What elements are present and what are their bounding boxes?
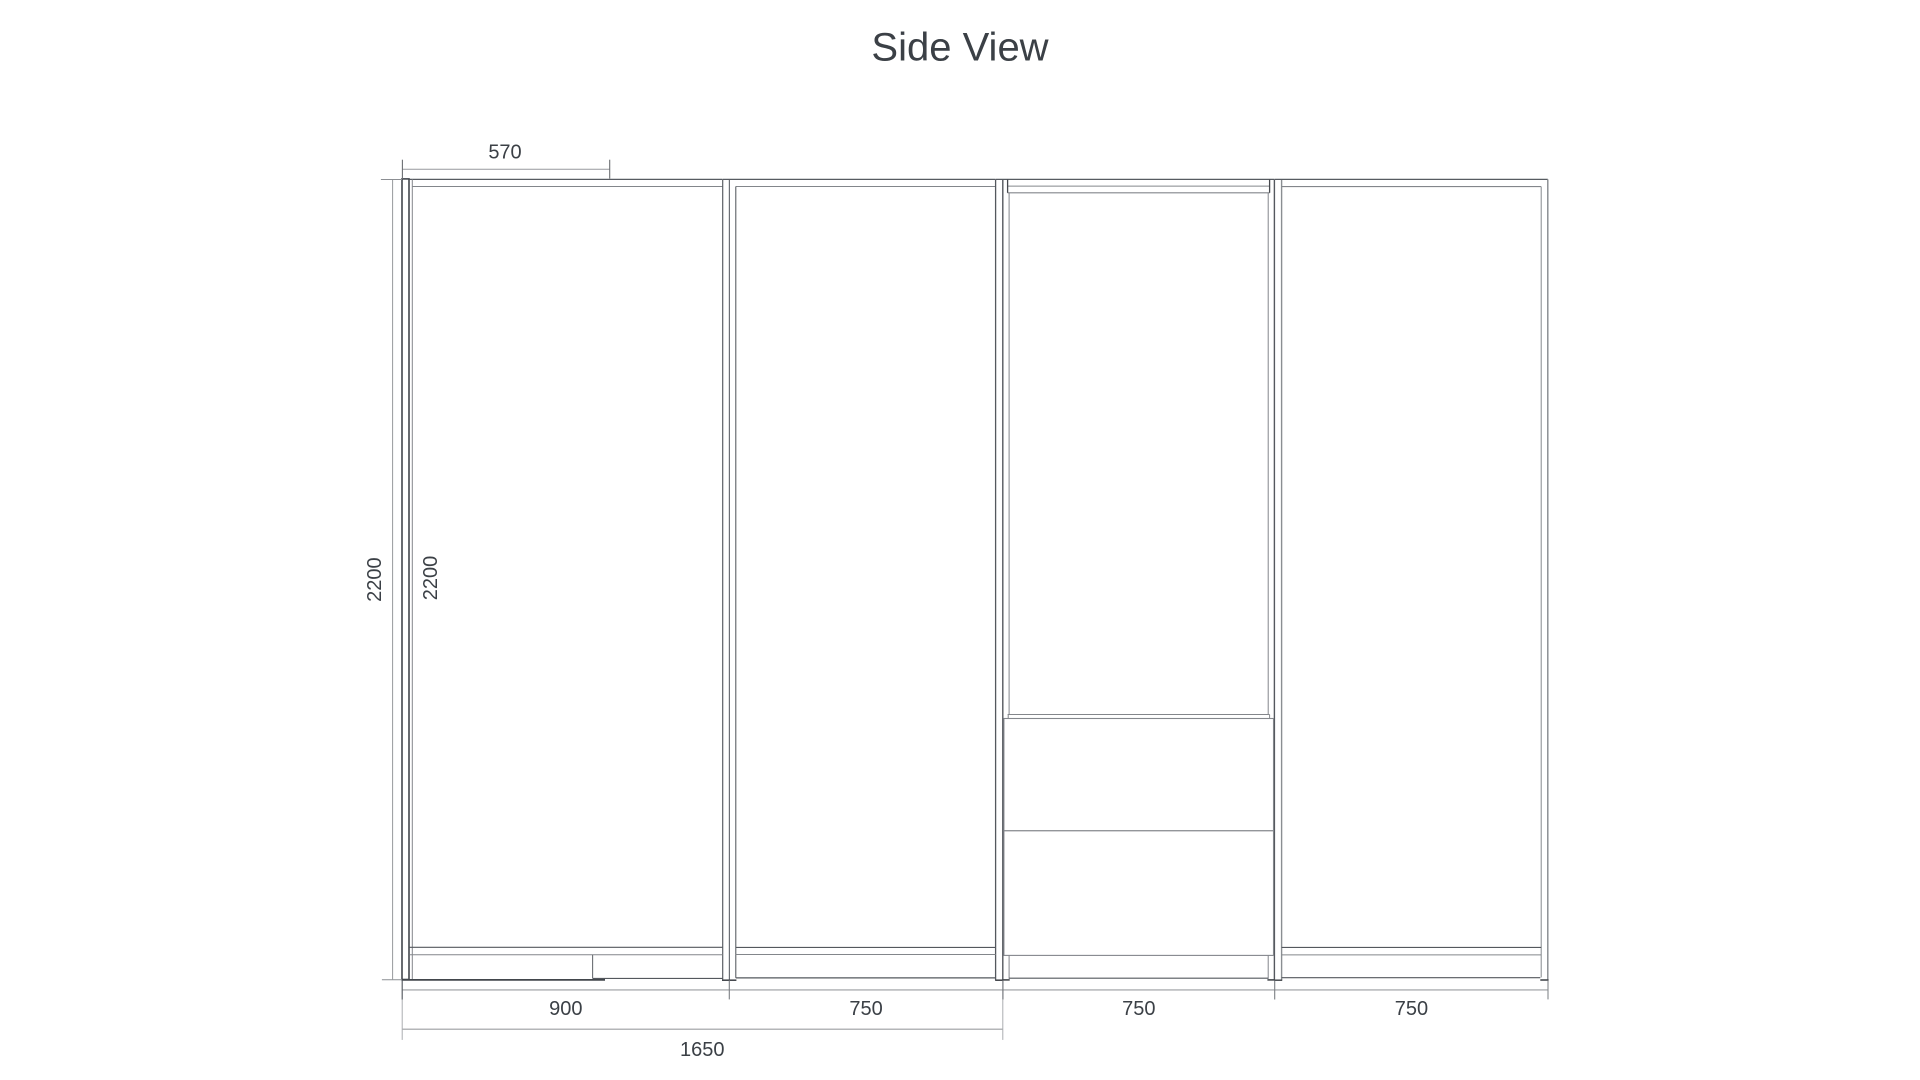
svg-text:750: 750 (849, 998, 882, 1020)
svg-text:1650: 1650 (680, 1039, 725, 1061)
svg-text:750: 750 (1395, 998, 1428, 1020)
svg-text:900: 900 (549, 998, 582, 1020)
svg-text:2200: 2200 (364, 557, 386, 602)
svg-text:750: 750 (1122, 998, 1155, 1020)
svg-text:2200: 2200 (420, 556, 442, 601)
svg-text:570: 570 (488, 142, 521, 164)
svg-text:Side View: Side View (871, 26, 1048, 70)
